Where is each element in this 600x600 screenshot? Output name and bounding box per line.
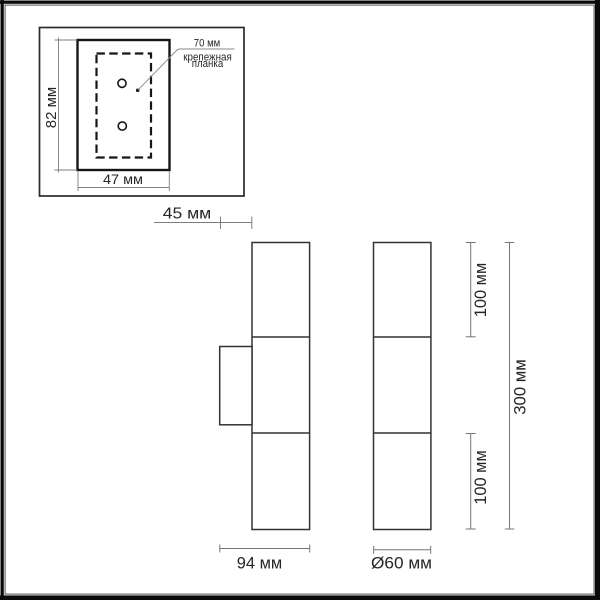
svg-text:47 мм: 47 мм: [103, 172, 143, 187]
svg-text:100 мм: 100 мм: [471, 450, 490, 505]
svg-text:300 мм: 300 мм: [511, 359, 530, 415]
svg-text:планка: планка: [192, 58, 224, 70]
svg-text:94 мм: 94 мм: [237, 554, 283, 572]
svg-text:45 мм: 45 мм: [163, 205, 212, 222]
svg-text:100 мм: 100 мм: [471, 263, 490, 318]
svg-text:70 мм: 70 мм: [194, 37, 221, 49]
svg-text:82 мм: 82 мм: [43, 87, 60, 128]
svg-text:Ø60 мм: Ø60 мм: [371, 554, 432, 572]
